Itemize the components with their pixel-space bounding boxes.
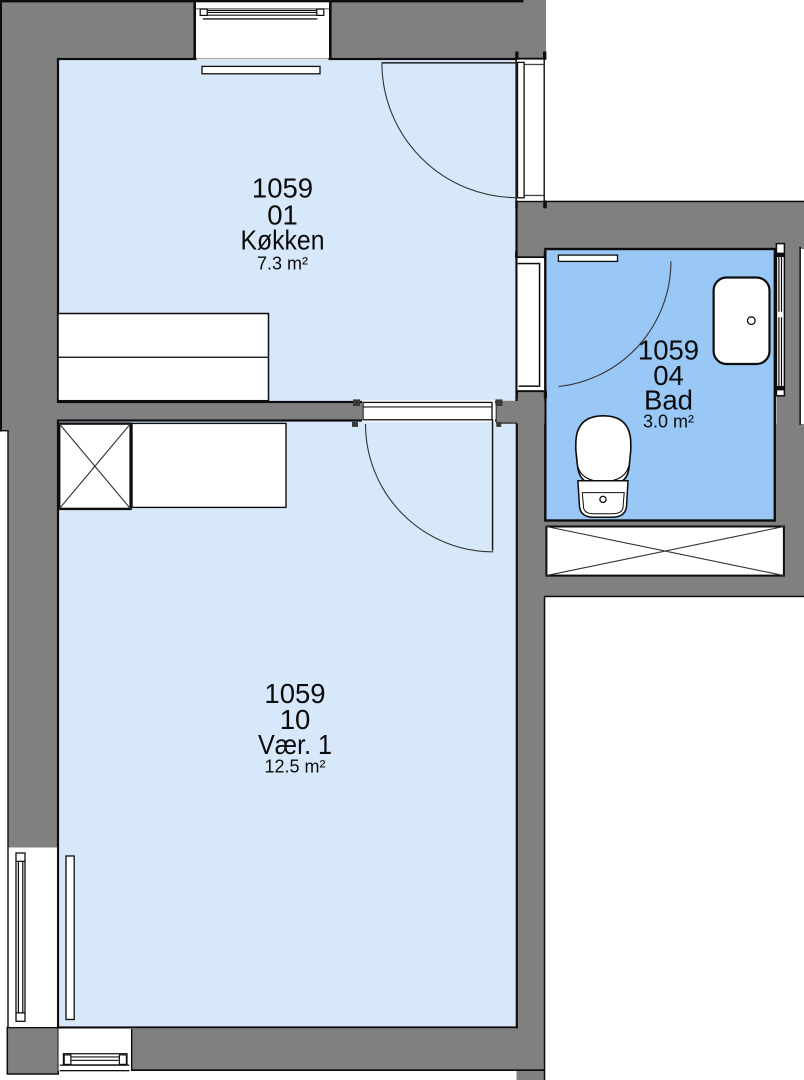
svg-text:7.3 m²: 7.3 m² <box>257 254 308 274</box>
svg-text:12.5 m²: 12.5 m² <box>264 757 325 777</box>
svg-text:Vær. 1: Vær. 1 <box>258 729 332 760</box>
svg-text:3.0 m²: 3.0 m² <box>643 412 694 432</box>
svg-text:Køkken: Køkken <box>241 224 325 255</box>
